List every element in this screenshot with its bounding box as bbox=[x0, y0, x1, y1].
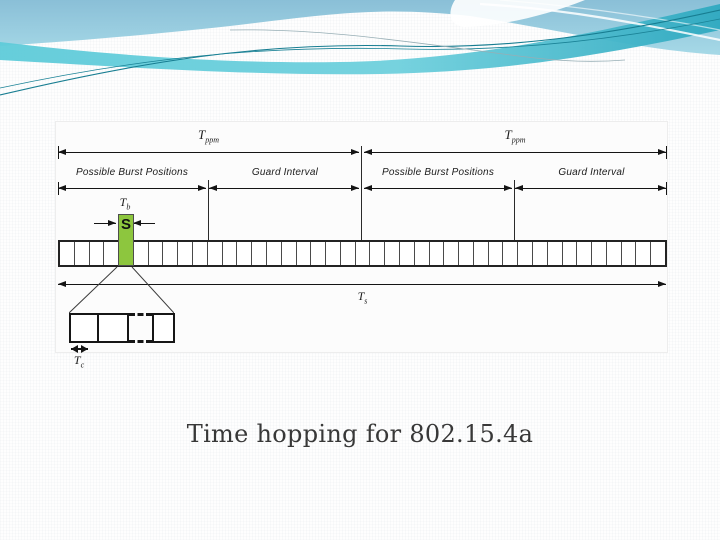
wave-header-art bbox=[0, 0, 720, 100]
chip-cell bbox=[341, 242, 356, 265]
chip-cell bbox=[237, 242, 252, 265]
t-ppm-arrow-left bbox=[58, 152, 359, 153]
dimension-tick bbox=[58, 182, 59, 195]
chip-cell bbox=[607, 242, 622, 265]
guard-interval-label-2: Guard Interval bbox=[517, 167, 666, 178]
dimension-tick bbox=[666, 182, 667, 195]
t-c-arrow bbox=[71, 348, 88, 350]
t-c-sub: c bbox=[81, 360, 85, 369]
guard-interval-label-1: Guard Interval bbox=[211, 167, 359, 178]
chip-cell: S bbox=[119, 242, 134, 265]
detail-continuation-dashes bbox=[129, 313, 152, 343]
t-ppm-base-right: T bbox=[504, 127, 511, 142]
chip-cell bbox=[459, 242, 474, 265]
chip-cell bbox=[489, 242, 504, 265]
chip-cell bbox=[592, 242, 607, 265]
chip-cell bbox=[622, 242, 637, 265]
chip-cell bbox=[149, 242, 164, 265]
chip-cell bbox=[267, 242, 282, 265]
slide-caption: Time hopping for 802.15.4a bbox=[0, 420, 720, 448]
chip-cell bbox=[178, 242, 193, 265]
t-b-arrow-left bbox=[94, 223, 116, 224]
chip-cell bbox=[444, 242, 459, 265]
burst-positions-arrow-1 bbox=[58, 188, 206, 189]
t-ppm-label-right: Tppm bbox=[364, 127, 666, 145]
burst-positions-arrow-2 bbox=[364, 188, 512, 189]
possible-burst-positions-label-2: Possible Burst Positions bbox=[364, 167, 512, 178]
guard-interval-arrow-2 bbox=[515, 188, 666, 189]
burst-symbol-label: S bbox=[119, 216, 133, 233]
chip-cell bbox=[223, 242, 238, 265]
chip-cell bbox=[326, 242, 341, 265]
timing-diagram: Tppm Tppm Possible Burst Positions Guard… bbox=[55, 121, 668, 353]
t-s-sub: s bbox=[364, 296, 367, 305]
chip-detail-box bbox=[69, 313, 175, 343]
guard-interval-arrow-1 bbox=[209, 188, 359, 189]
chip-cell bbox=[563, 242, 578, 265]
chip-cell bbox=[533, 242, 548, 265]
burst-slot-highlight: S bbox=[118, 214, 134, 266]
dimension-tick bbox=[666, 146, 667, 159]
chip-cell bbox=[518, 242, 533, 265]
chip-cell bbox=[297, 242, 312, 265]
chip-cell bbox=[75, 242, 90, 265]
t-ppm-label-left: Tppm bbox=[56, 127, 361, 145]
chip-cell bbox=[60, 242, 75, 265]
t-ppm-sub-right: ppm bbox=[512, 136, 526, 145]
chip-cell bbox=[474, 242, 489, 265]
dimension-tick bbox=[58, 146, 59, 159]
chip-cell bbox=[356, 242, 371, 265]
chip-cell bbox=[636, 242, 651, 265]
chip-cell bbox=[208, 242, 223, 265]
possible-burst-positions-label-1: Possible Burst Positions bbox=[58, 167, 206, 178]
chip-cell bbox=[651, 242, 665, 265]
chip-cell bbox=[134, 242, 149, 265]
chip-cell bbox=[548, 242, 563, 265]
chip-cell bbox=[385, 242, 400, 265]
chip-cell bbox=[400, 242, 415, 265]
section-divider-line-1 bbox=[208, 180, 209, 240]
slide: Tppm Tppm Possible Burst Positions Guard… bbox=[0, 0, 720, 540]
chip-cell bbox=[577, 242, 592, 265]
chip-cell bbox=[415, 242, 430, 265]
wave-header-decoration bbox=[0, 0, 720, 100]
t-b-arrow-right bbox=[133, 223, 155, 224]
chip-cell bbox=[90, 242, 105, 265]
t-c-label: Tc bbox=[64, 353, 94, 369]
t-b-label: Tb bbox=[110, 195, 140, 211]
t-ppm-sub-left: ppm bbox=[205, 136, 219, 145]
detail-chip-cell bbox=[69, 313, 99, 343]
chip-cell bbox=[311, 242, 326, 265]
chip-cell bbox=[252, 242, 267, 265]
chip-cell bbox=[193, 242, 208, 265]
detail-chip-cell bbox=[99, 313, 129, 343]
zoom-expansion-lines bbox=[69, 267, 174, 313]
chip-cell bbox=[503, 242, 518, 265]
detail-chip-cell bbox=[152, 313, 175, 343]
frame-divider-line bbox=[361, 146, 362, 240]
chip-cell bbox=[282, 242, 297, 265]
t-ppm-arrow-right bbox=[364, 152, 666, 153]
chip-cell bbox=[163, 242, 178, 265]
chip-cell bbox=[430, 242, 445, 265]
chip-strip: S bbox=[58, 240, 667, 267]
chip-cell bbox=[104, 242, 119, 265]
t-b-sub: b bbox=[126, 202, 130, 211]
section-divider-line-2 bbox=[514, 180, 515, 240]
chip-cell bbox=[370, 242, 385, 265]
t-c-base: T bbox=[74, 353, 81, 367]
